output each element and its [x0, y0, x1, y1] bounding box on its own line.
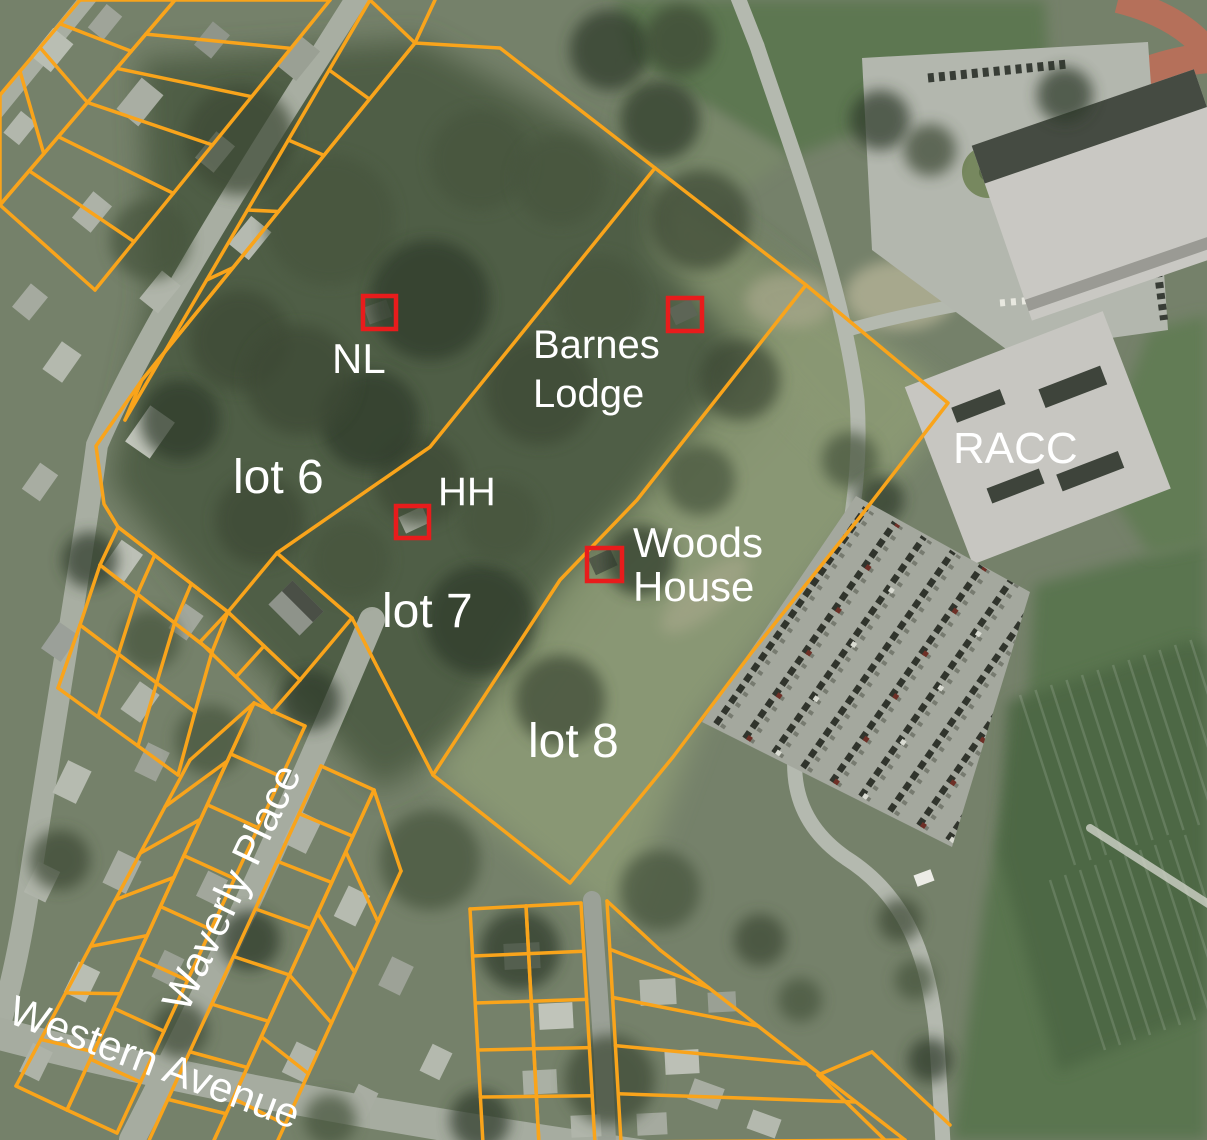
tree-blob [908, 1038, 952, 1082]
label-racc: RACC [953, 424, 1078, 473]
house-roof [639, 978, 676, 1006]
tree-blob [895, 960, 935, 1000]
tree-blob [110, 200, 190, 280]
tree-blob [280, 670, 340, 730]
tree-blob [1037, 67, 1093, 123]
tree-blob [734, 914, 786, 966]
map-canvas: NL Barnes Lodge lot 6 HH lot 7 Woods Hou… [0, 0, 1207, 1140]
tree-blob [265, 155, 395, 285]
tree-blob [850, 90, 910, 150]
tree-blob [480, 910, 560, 990]
house-roof [538, 1002, 573, 1030]
tree-blob [778, 978, 822, 1022]
tree-blob [310, 520, 390, 600]
tree-blob [878, 898, 922, 942]
aerial-map: NL Barnes Lodge lot 6 HH lot 7 Woods Hou… [0, 0, 1207, 1140]
tree-blob [620, 850, 700, 930]
label-barnes-line2: Lodge [533, 372, 644, 416]
label-nl: NL [332, 335, 386, 382]
label-woods-line1: Woods [633, 519, 763, 566]
label-hh: HH [438, 470, 496, 514]
tree-blob [62, 532, 118, 588]
label-lot8: lot 8 [528, 715, 619, 768]
tree-blob [30, 830, 90, 890]
label-woods-line2: House [633, 563, 754, 610]
tree-blob [650, 170, 750, 270]
house-roof [707, 991, 736, 1012]
tree-blob [904, 124, 956, 176]
tree-blob [515, 135, 605, 225]
tree-blob [700, 340, 780, 420]
tree-blob [665, 445, 735, 515]
label-lot6: lot 6 [233, 451, 324, 504]
tree-blob [430, 110, 530, 210]
house-roof [636, 1112, 667, 1136]
tree-blob [645, 5, 715, 75]
house-roof [522, 1069, 557, 1095]
label-lot7: lot 7 [382, 585, 473, 638]
tree-blob [140, 380, 220, 460]
tree-blob [380, 810, 480, 910]
tree-blob [570, 10, 650, 90]
label-barnes-line1: Barnes [533, 323, 660, 367]
tree-blob [370, 240, 490, 360]
